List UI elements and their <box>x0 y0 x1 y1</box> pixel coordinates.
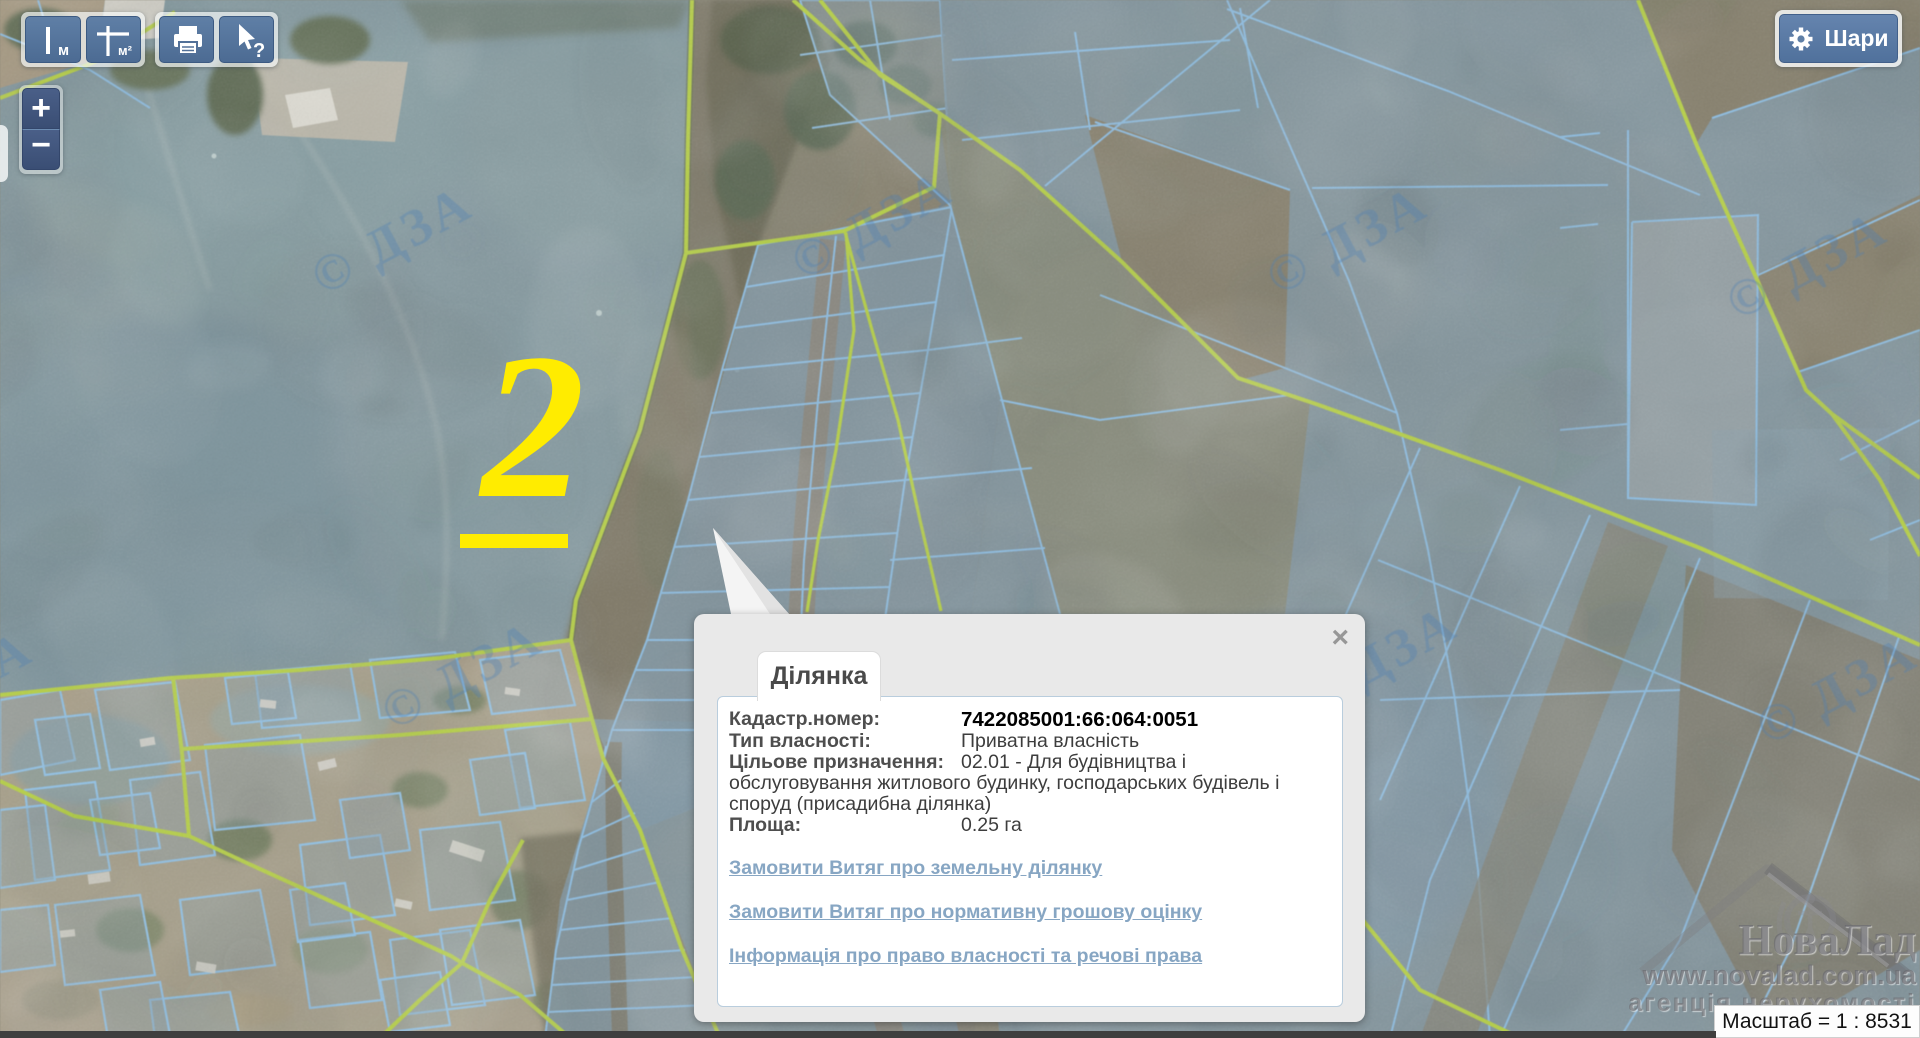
svg-text:?: ? <box>253 40 265 62</box>
svg-text:м: м <box>58 42 69 59</box>
svg-text:м²: м² <box>118 43 133 58</box>
